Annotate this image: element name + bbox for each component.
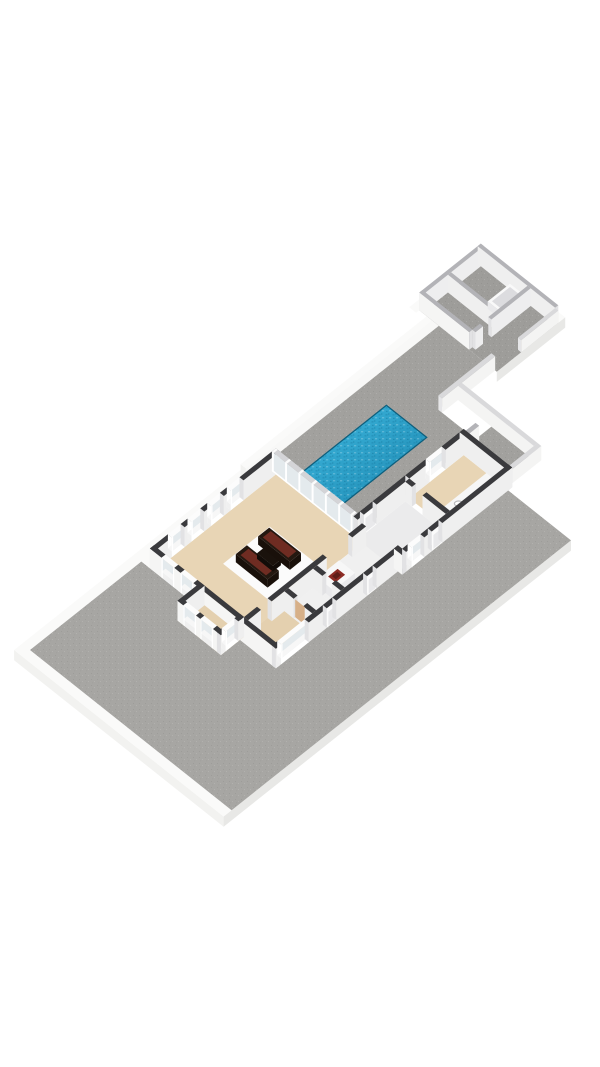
floorplan-page <box>0 0 600 1067</box>
floorplan-3d-render <box>0 0 600 1067</box>
